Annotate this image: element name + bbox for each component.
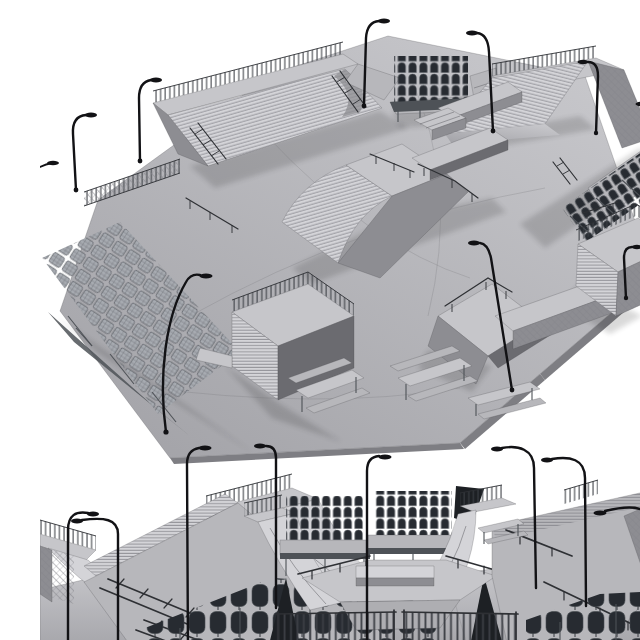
street-lamp: [73, 113, 97, 193]
front-view: [40, 444, 640, 640]
seat-rows: [394, 56, 468, 102]
street-lamp: [40, 161, 59, 167]
aerial-view: [40, 19, 640, 464]
seat-rows: [286, 496, 364, 542]
render-canvas: [40, 16, 640, 640]
skatepark-render: [40, 16, 640, 640]
seat-rows: [374, 491, 452, 537]
